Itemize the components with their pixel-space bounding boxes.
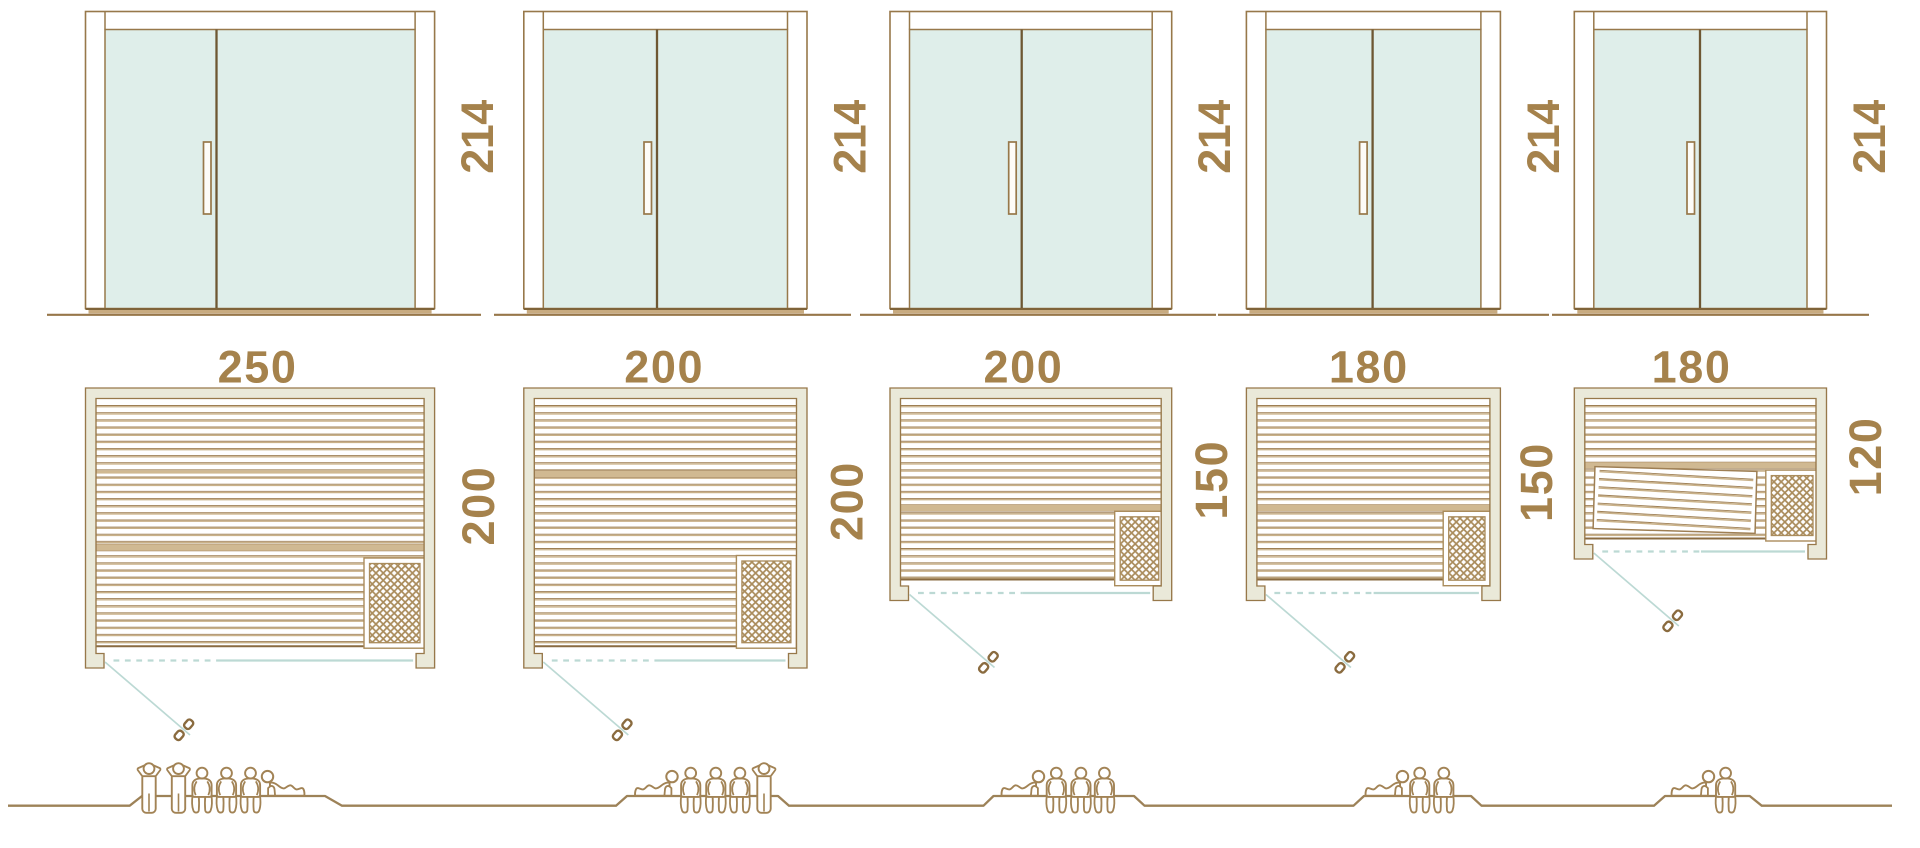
svg-text:214: 214 [1189,100,1240,174]
svg-text:120: 120 [1840,416,1891,496]
svg-text:180: 180 [1329,342,1409,393]
svg-text:200: 200 [624,342,704,393]
svg-text:250: 250 [218,342,298,393]
svg-text:180: 180 [1652,342,1732,393]
svg-text:214: 214 [825,100,876,174]
svg-text:200: 200 [821,461,872,541]
svg-text:214: 214 [1844,100,1895,174]
svg-text:200: 200 [453,466,504,546]
svg-text:200: 200 [983,342,1063,393]
svg-text:214: 214 [1518,100,1569,174]
svg-text:214: 214 [452,100,503,174]
svg-text:150: 150 [1186,440,1237,520]
svg-text:150: 150 [1511,442,1562,522]
